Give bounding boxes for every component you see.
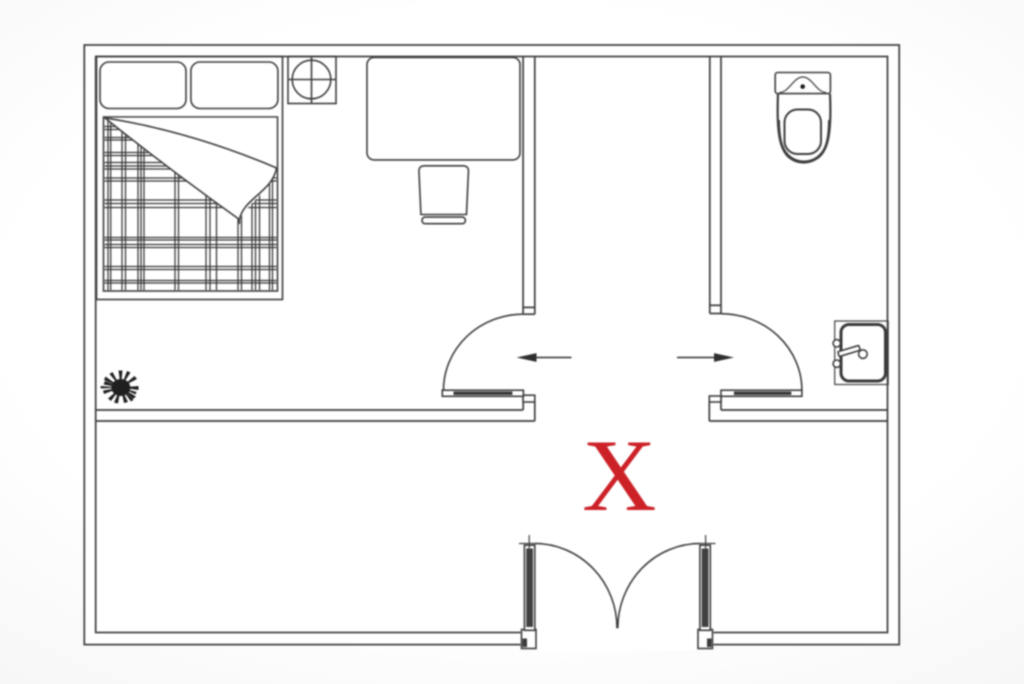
- svg-text:X: X: [582, 419, 656, 533]
